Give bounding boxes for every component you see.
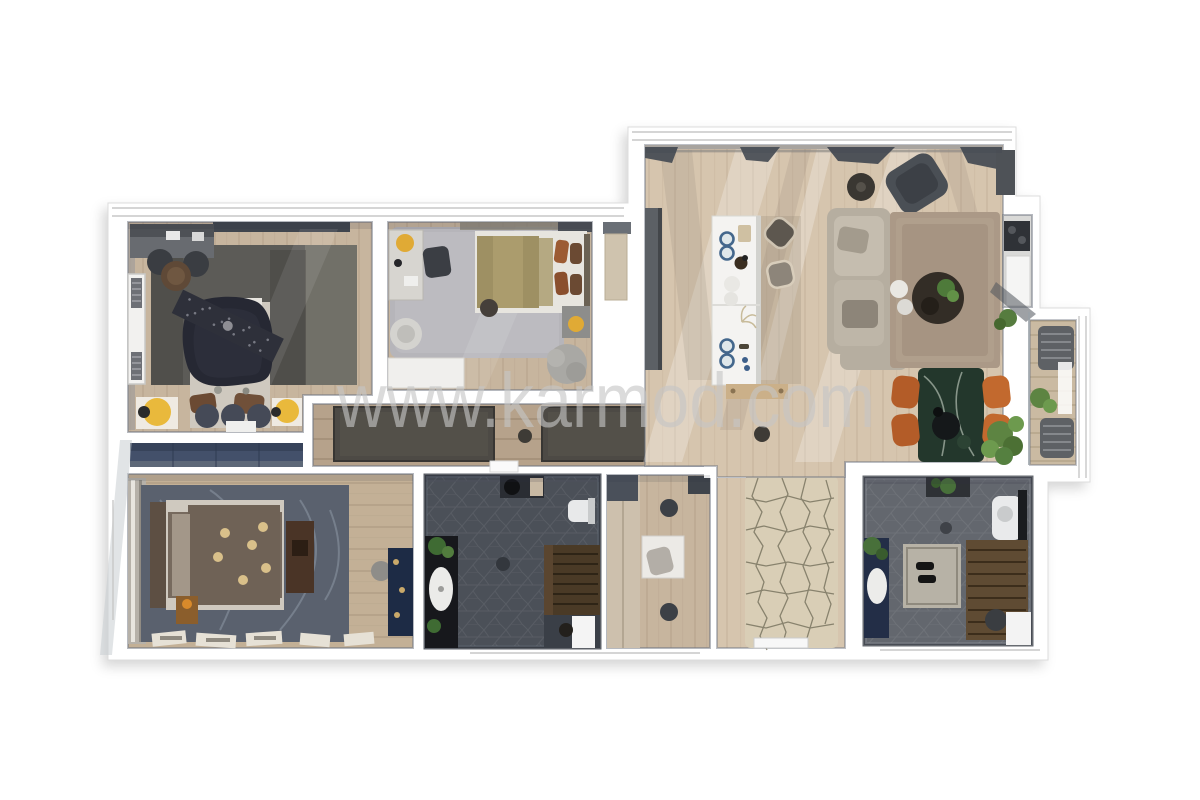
svg-text:www.karmod.com: www.karmod.com xyxy=(336,358,875,444)
